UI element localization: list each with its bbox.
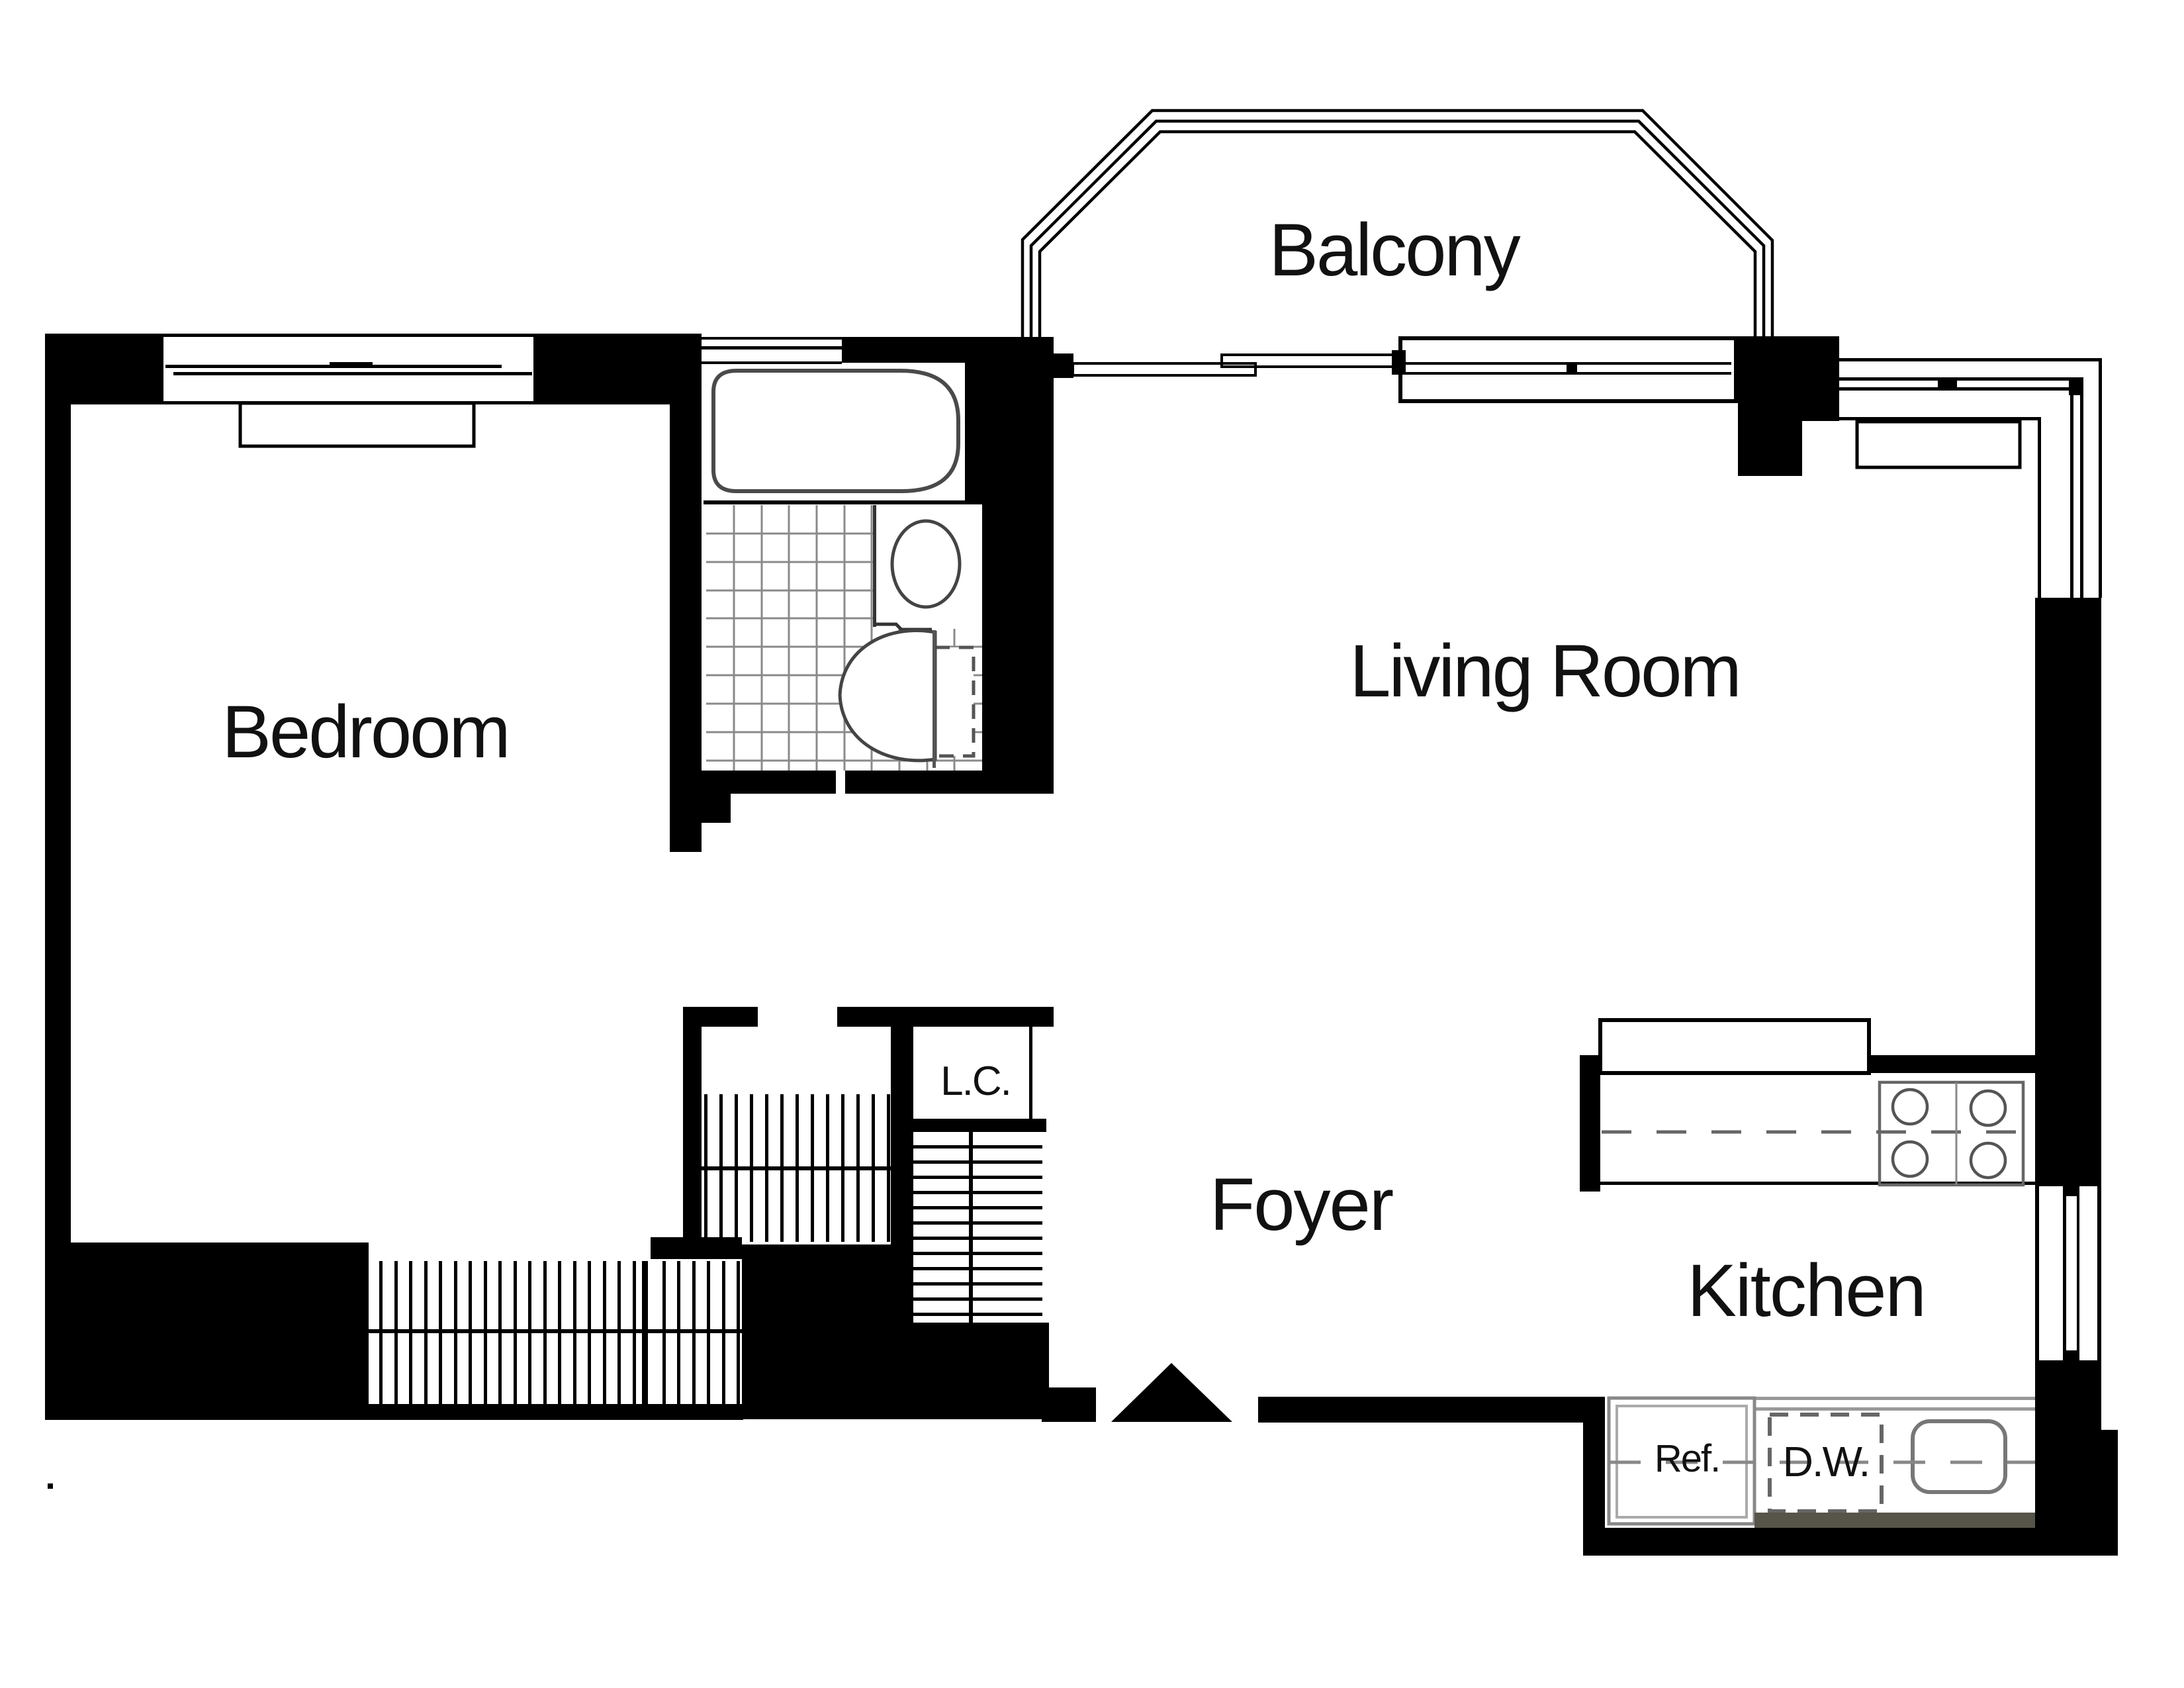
svg-text:Bedroom: Bedroom xyxy=(222,690,508,773)
svg-text:Foyer: Foyer xyxy=(1210,1163,1393,1246)
svg-text:Kitchen: Kitchen xyxy=(1687,1249,1925,1332)
svg-text:Living Room: Living Room xyxy=(1349,630,1740,712)
svg-text:Ref.: Ref. xyxy=(1655,1437,1719,1480)
svg-text:D.W.: D.W. xyxy=(1783,1438,1870,1485)
svg-text:L.C.: L.C. xyxy=(940,1058,1011,1104)
svg-text:Balcony: Balcony xyxy=(1269,209,1520,291)
